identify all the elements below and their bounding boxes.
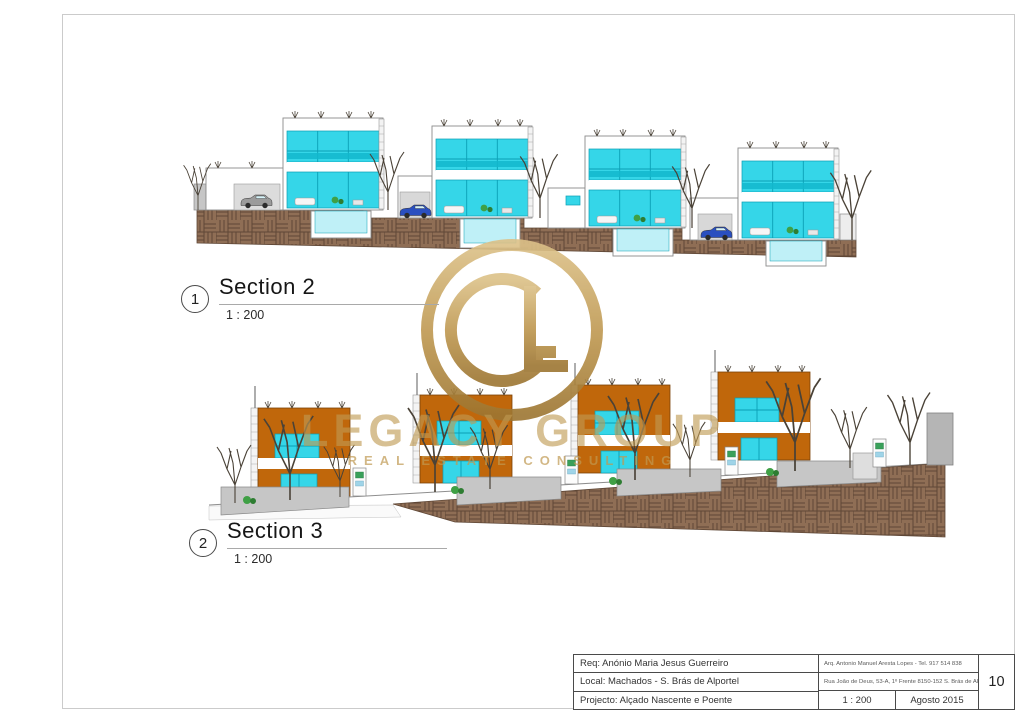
location-row: Local: Machados - S. Brás de Alportel [574, 673, 818, 691]
watermark-title: LEGACY GROUP [301, 405, 725, 457]
section-3-label: 2 Section 3 1 : 200 [189, 518, 447, 566]
watermark-subtitle: REAL ESTATE CONSULTING [348, 453, 679, 468]
utility-pillar [873, 439, 886, 467]
drawing-sheet: 1 Section 2 1 : 200 2 Section 3 1 : 200 … [0, 0, 1024, 723]
requester-row: Req: Anónio Maria Jesus Guerreiro [574, 655, 818, 673]
sheet-number: 10 [979, 655, 1014, 709]
architect-info: Arq. Antonio Manuel Aresta Lopes - Tel. … [819, 655, 978, 691]
title-block: Req: Anónio Maria Jesus Guerreiro Local:… [573, 654, 1015, 710]
house-section [738, 141, 839, 240]
section-3-badge: 2 [189, 529, 217, 557]
watermark-monogram-icon [427, 245, 597, 415]
section-3-scale: 1 : 200 [234, 552, 447, 566]
date-cell: Agosto 2015 [896, 691, 978, 709]
sections-canvas [0, 0, 1024, 723]
utility-pillar [725, 447, 738, 475]
architect-line-2: Rua João de Deus, 53-A, 1º Frente 8150-1… [819, 673, 978, 691]
section-2-badge: 1 [181, 285, 209, 313]
section-2-title: Section 2 [219, 274, 439, 305]
section-3-title: Section 3 [227, 518, 447, 549]
house-section [585, 129, 686, 228]
house-section [432, 119, 533, 218]
project-row: Projecto: Alçado Nascente e Poente [574, 692, 818, 709]
section-2-scale: 1 : 200 [226, 308, 439, 322]
scale-cell: 1 : 200 [819, 691, 896, 709]
section-2-label: 1 Section 2 1 : 200 [181, 274, 439, 322]
architect-line-1: Arq. Antonio Manuel Aresta Lopes - Tel. … [819, 655, 978, 673]
utility-pillar [353, 468, 366, 496]
house-section [283, 111, 384, 210]
